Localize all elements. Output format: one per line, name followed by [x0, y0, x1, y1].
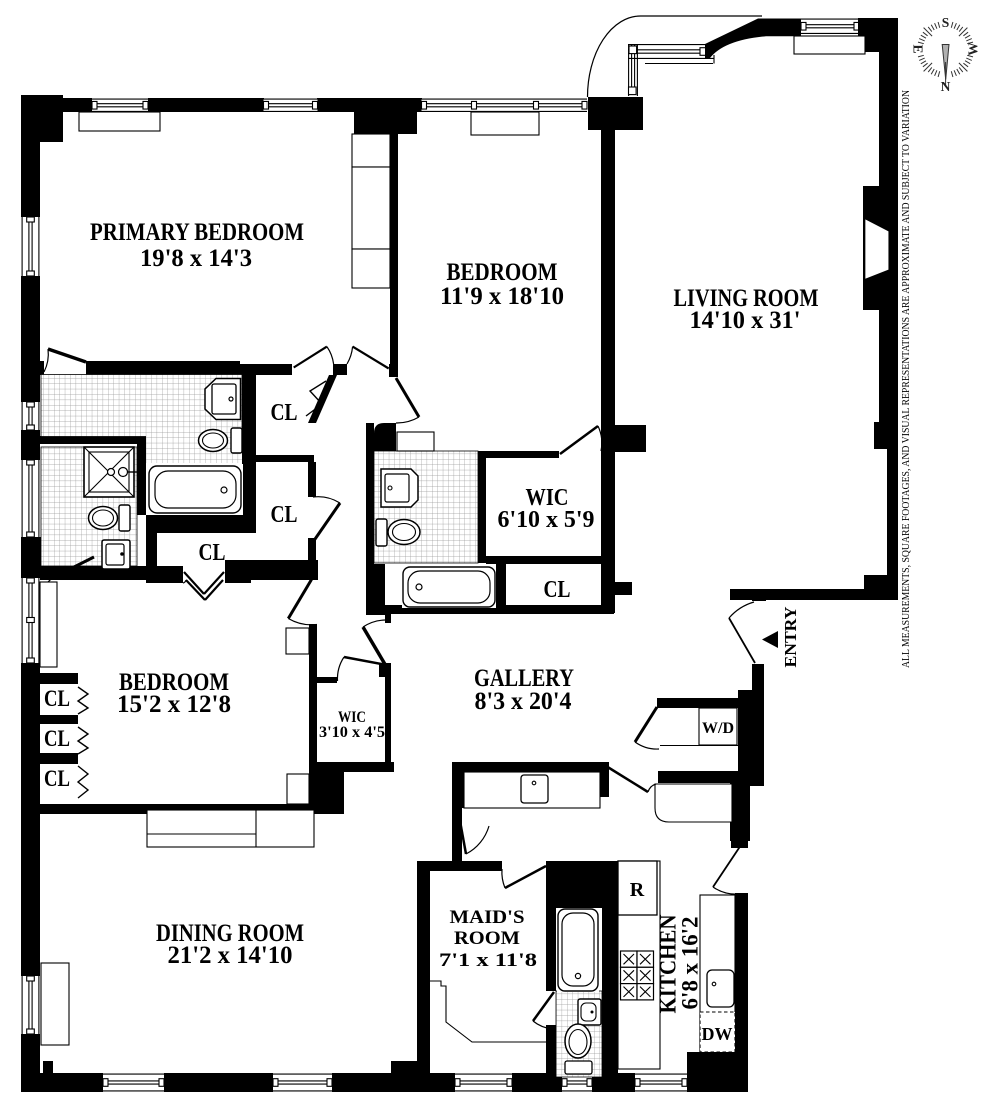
svg-text:W/D: W/D — [702, 720, 734, 737]
svg-text:ALL MEASUREMENTS, SQUARE FOOTA: ALL MEASUREMENTS, SQUARE FOOTAGES, AND V… — [901, 90, 912, 668]
svg-text:E: E — [911, 44, 926, 53]
svg-text:CL: CL — [271, 502, 298, 528]
svg-text:CL: CL — [271, 400, 298, 426]
svg-text:14'10 x 31': 14'10 x 31' — [690, 307, 801, 334]
svg-text:PRIMARY BEDROOM: PRIMARY BEDROOM — [90, 219, 304, 246]
svg-text:MAID'S: MAID'S — [450, 907, 525, 928]
svg-text:CL: CL — [544, 577, 571, 603]
svg-text:W: W — [966, 42, 981, 56]
svg-text:11'9 x 18'10: 11'9 x 18'10 — [440, 283, 564, 310]
svg-text:15'2 x 12'8: 15'2 x 12'8 — [117, 691, 231, 718]
svg-text:6'10 x 5'9: 6'10 x 5'9 — [498, 507, 595, 533]
svg-text:19'8 x 14'3: 19'8 x 14'3 — [140, 245, 252, 272]
svg-text:CL: CL — [199, 540, 226, 566]
svg-text:N: N — [941, 79, 951, 94]
svg-text:BEDROOM: BEDROOM — [447, 259, 558, 286]
svg-text:CL: CL — [44, 726, 70, 751]
svg-text:CL: CL — [44, 686, 70, 711]
svg-text:3'10 x 4'5: 3'10 x 4'5 — [319, 724, 385, 741]
svg-text:S: S — [942, 15, 950, 30]
svg-text:21'2 x 14'10: 21'2 x 14'10 — [168, 942, 293, 969]
svg-text:6'8 x 16'2: 6'8 x 16'2 — [677, 917, 702, 1010]
svg-text:ROOM: ROOM — [454, 928, 520, 949]
svg-text:R: R — [630, 879, 645, 901]
svg-text:DW: DW — [702, 1024, 733, 1044]
svg-text:8'3 x 20'4: 8'3 x 20'4 — [475, 688, 572, 715]
svg-text:ENTRY: ENTRY — [781, 607, 800, 668]
svg-text:CL: CL — [44, 766, 70, 791]
svg-text:7'1 x 11'8: 7'1 x 11'8 — [439, 950, 537, 971]
